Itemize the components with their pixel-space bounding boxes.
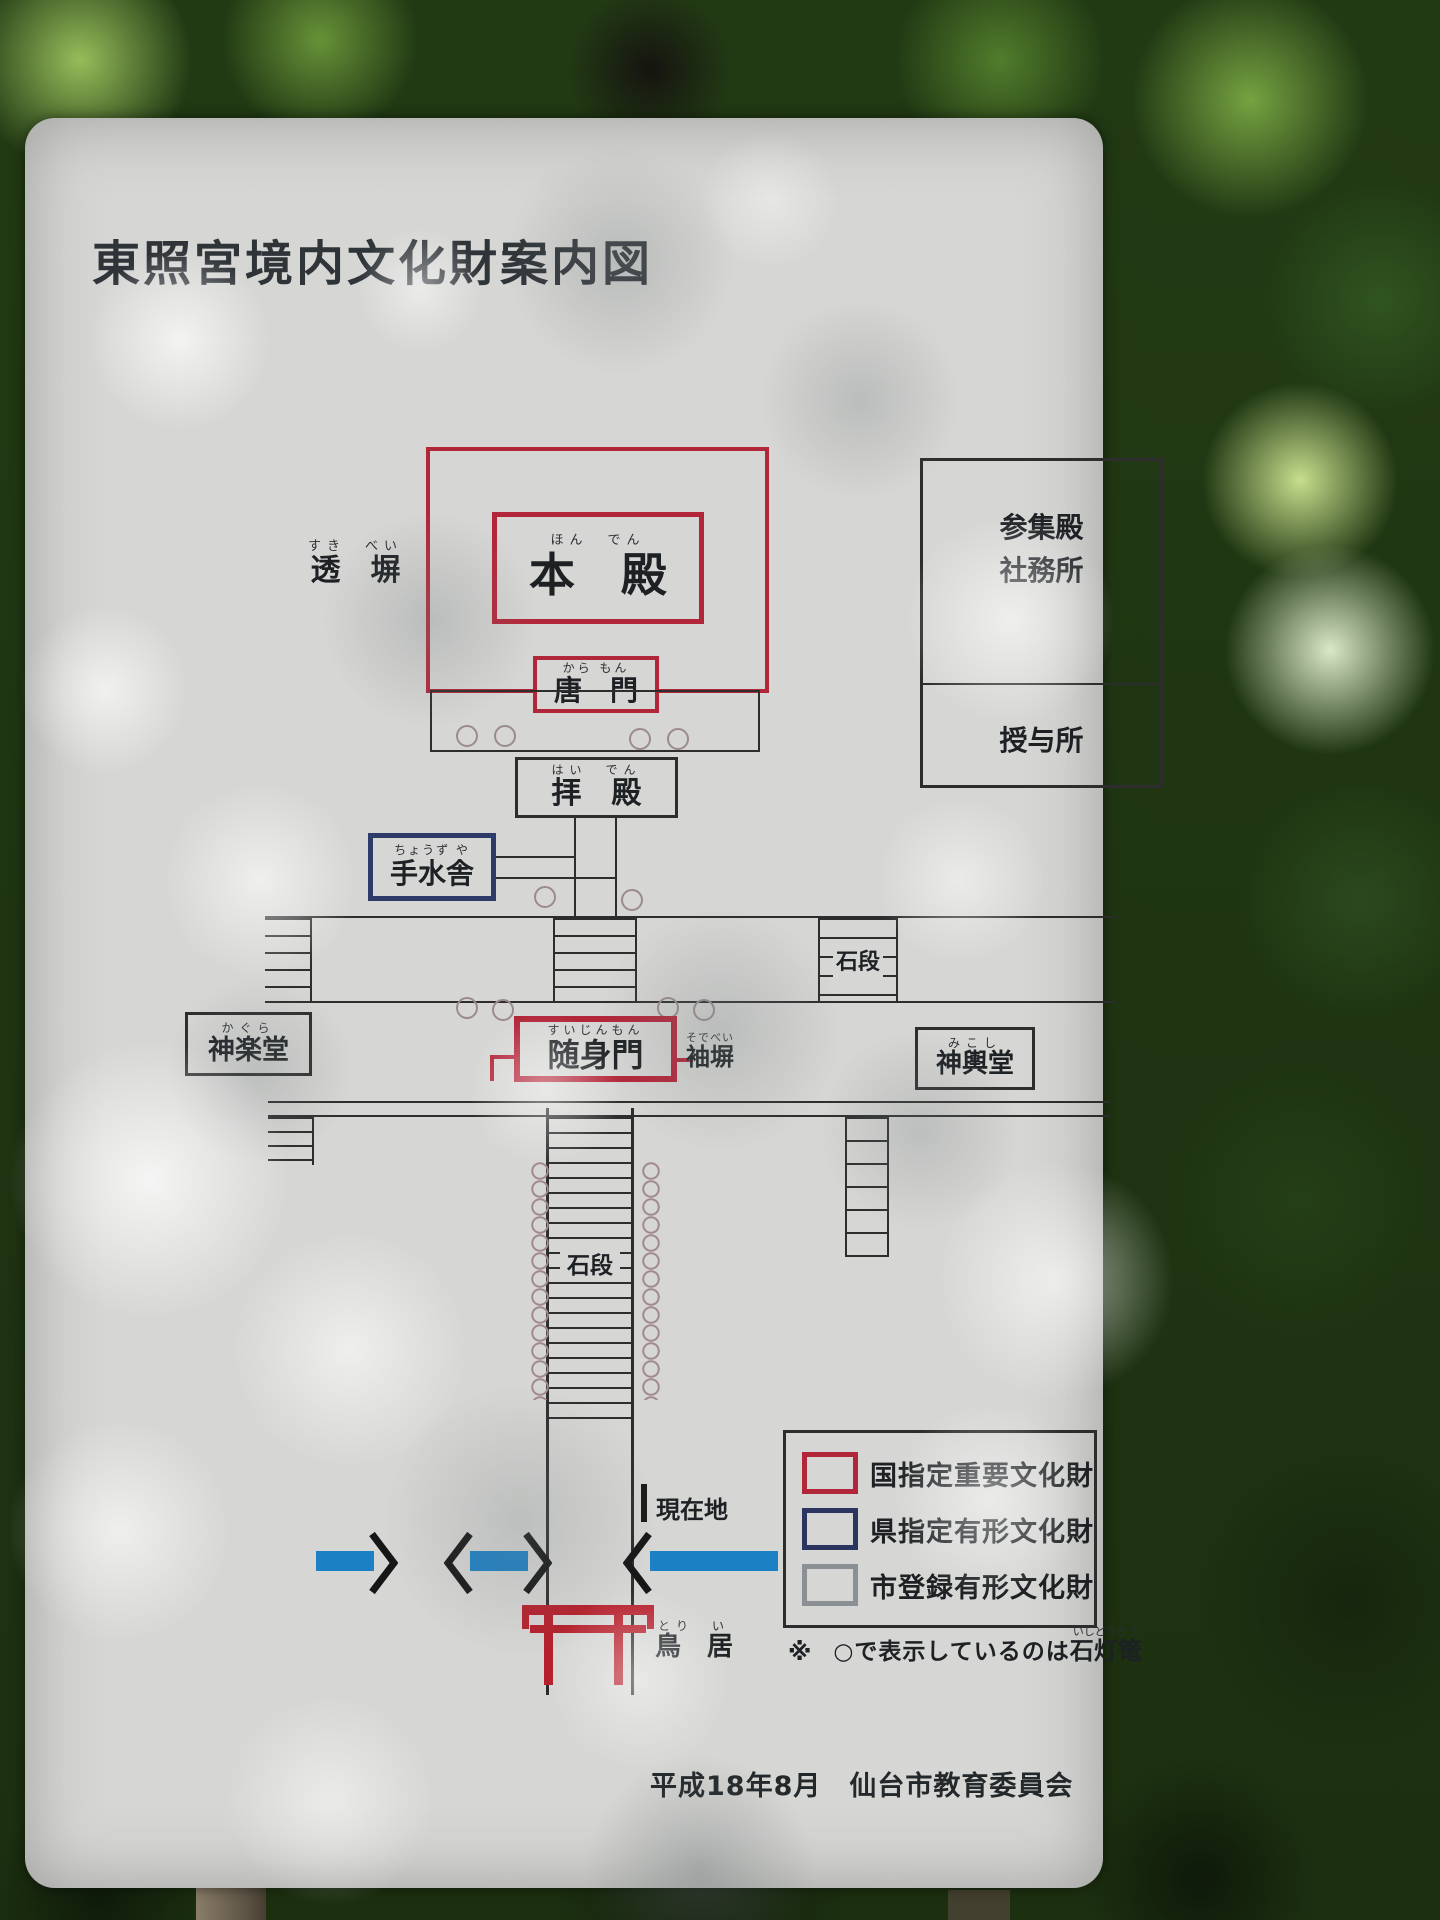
stone-lantern-circle bbox=[456, 725, 478, 747]
haiden-text: 拝 殿 bbox=[552, 777, 642, 812]
chozuya-text: 手水舎 bbox=[390, 858, 474, 890]
road-segment bbox=[316, 1551, 374, 1571]
stone-lantern-circle bbox=[621, 889, 643, 911]
arrow-left-icon bbox=[444, 1532, 474, 1594]
stone-lantern-circle bbox=[492, 999, 514, 1021]
chozuya-path-line bbox=[496, 877, 617, 879]
stone-lantern-circle bbox=[667, 728, 689, 750]
stairs-upper-left bbox=[265, 918, 312, 1001]
chozuya-furigana: ちょうず や bbox=[394, 844, 470, 857]
sanshuden-line1: 参集殿 bbox=[923, 506, 1160, 549]
haiden-terrace-outline bbox=[430, 690, 760, 752]
sukibei-text: 透 塀 bbox=[308, 554, 403, 589]
note-mark: ※ bbox=[788, 1638, 811, 1666]
lower-terrace-bottom-line bbox=[268, 1115, 1110, 1117]
zuijinmon-box: すいじんもん 随身門 bbox=[514, 1016, 677, 1082]
current-location-label: 現在地 bbox=[656, 1490, 728, 1525]
road-segment bbox=[470, 1551, 528, 1571]
sodebei-text: 袖塀 bbox=[686, 1044, 734, 1072]
legend-item-municipal: 市登録有形文化財 bbox=[802, 1564, 1094, 1606]
stone-lantern-circle bbox=[629, 728, 651, 750]
ishidan-upper-label: 石段 bbox=[833, 943, 883, 977]
shrine-office-divider bbox=[923, 683, 1160, 685]
legend-label: 市登録有形文化財 bbox=[870, 1566, 1094, 1605]
road-segment bbox=[650, 1551, 778, 1571]
sukibei-furigana: すき べい bbox=[308, 540, 403, 554]
arrow-left-icon bbox=[623, 1532, 653, 1594]
current-location-tick bbox=[641, 1484, 647, 1522]
sanshuden-label: 参集殿 社務所 bbox=[923, 506, 1160, 593]
shrine-office-box: 参集殿 社務所 授与所 bbox=[920, 458, 1163, 788]
stone-lantern-circle bbox=[494, 725, 516, 747]
torii-icon bbox=[647, 1605, 654, 1629]
arrow-right-icon bbox=[368, 1532, 398, 1594]
stone-lantern-circle bbox=[534, 886, 556, 908]
haiden-furigana: はい でん bbox=[551, 764, 641, 777]
stairs-ishidan-upper: 石段 bbox=[818, 918, 898, 1001]
kagurado-box: かぐら 神楽堂 bbox=[185, 1012, 312, 1076]
legend-box: 国指定重要文化財 県指定有形文化財 市登録有形文化財 bbox=[783, 1430, 1097, 1628]
stairs-lower-left bbox=[268, 1117, 314, 1165]
honden-text: 本 殿 bbox=[529, 549, 667, 602]
photo-of-shrine-guide-sign: 東照宮境内文化財案内図 すき べい 透 塀 ほん でん 本 殿 から もん 唐 … bbox=[0, 0, 1440, 1920]
sodebei-wall-left bbox=[490, 1055, 494, 1081]
sodebei-label: そでべい 袖塀 bbox=[686, 1032, 734, 1072]
legend-note: ※ ○で表示しているのは いしどうろう 石灯篭 bbox=[788, 1626, 1142, 1666]
note-term: いしどうろう 石灯篭 bbox=[1070, 1626, 1142, 1666]
sanshuden-line2: 社務所 bbox=[923, 549, 1160, 592]
lower-terrace-top-line bbox=[268, 1101, 1110, 1103]
legend-label: 国指定重要文化財 bbox=[870, 1454, 1094, 1493]
torii-icon bbox=[522, 1605, 529, 1629]
legend-item-prefectural: 県指定有形文化財 bbox=[802, 1508, 1094, 1550]
stone-lantern-circle bbox=[456, 997, 478, 1019]
zuijinmon-text: 随身門 bbox=[547, 1037, 643, 1074]
torii-icon bbox=[522, 1605, 654, 1615]
legend-item-national: 国指定重要文化財 bbox=[802, 1452, 1094, 1494]
mikoshido-box: みこし 神輿堂 bbox=[915, 1027, 1035, 1090]
juyosho-label: 授与所 bbox=[923, 719, 1160, 759]
honden-box: ほん でん 本 殿 bbox=[492, 512, 704, 624]
terrace-bottom-line bbox=[265, 1001, 1115, 1003]
stone-lantern-circle bbox=[693, 999, 715, 1021]
stairs-center-upper bbox=[553, 918, 637, 1001]
sign-post-base bbox=[948, 1890, 1010, 1920]
path-line bbox=[574, 818, 576, 918]
mikoshido-text: 神輿堂 bbox=[936, 1050, 1014, 1080]
torii-icon bbox=[544, 1605, 553, 1685]
honden-furigana: ほん でん bbox=[550, 534, 645, 548]
torii-text: 鳥 居 bbox=[655, 1633, 733, 1663]
kagurado-furigana: かぐら bbox=[221, 1022, 275, 1035]
national-treasure-swatch bbox=[802, 1452, 858, 1494]
terrace-top-line bbox=[265, 916, 1115, 918]
sign-credit: 平成18年8月 仙台市教育委員会 bbox=[650, 1764, 1073, 1803]
chozuya-box: ちょうず や 手水舎 bbox=[368, 833, 496, 901]
ishidan-lower-label: 石段 bbox=[560, 1246, 620, 1280]
sign-title: 東照宮境内文化財案内図 bbox=[92, 224, 653, 294]
prefectural-swatch bbox=[802, 1508, 858, 1550]
path-line bbox=[615, 818, 617, 918]
haiden-box: はい でん 拝 殿 bbox=[515, 757, 678, 818]
torii-label: とり い 鳥 居 bbox=[655, 1620, 733, 1663]
arrow-right-icon bbox=[522, 1532, 552, 1594]
note-term-text: 石灯篭 bbox=[1070, 1638, 1142, 1666]
municipal-swatch bbox=[802, 1564, 858, 1606]
stone-lantern-column-right bbox=[640, 1162, 662, 1400]
stairs-lower-right bbox=[845, 1117, 889, 1257]
chozuya-path-line bbox=[496, 856, 576, 858]
sukibei-label: すき べい 透 塀 bbox=[308, 540, 403, 589]
kagurado-text: 神楽堂 bbox=[208, 1035, 289, 1066]
torii-icon bbox=[614, 1605, 623, 1685]
note-text: ○で表示しているのは bbox=[833, 1632, 1069, 1666]
legend-label: 県指定有形文化財 bbox=[870, 1510, 1094, 1549]
stone-lantern-column-left bbox=[529, 1162, 551, 1400]
